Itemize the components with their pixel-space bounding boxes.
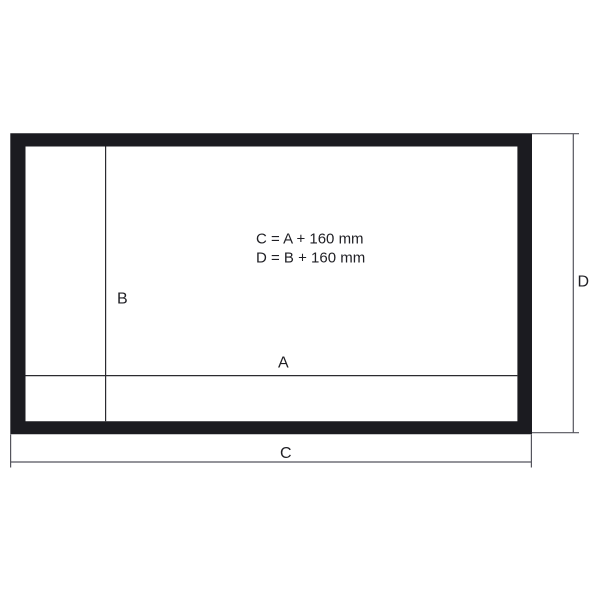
svg-text:D = B + 160 mm: D = B + 160 mm xyxy=(256,250,365,267)
svg-text:C = A + 160 mm: C = A + 160 mm xyxy=(256,231,364,248)
svg-text:C: C xyxy=(280,445,292,462)
svg-text:B: B xyxy=(117,291,128,308)
svg-text:D: D xyxy=(578,274,590,291)
svg-text:A: A xyxy=(278,355,289,372)
